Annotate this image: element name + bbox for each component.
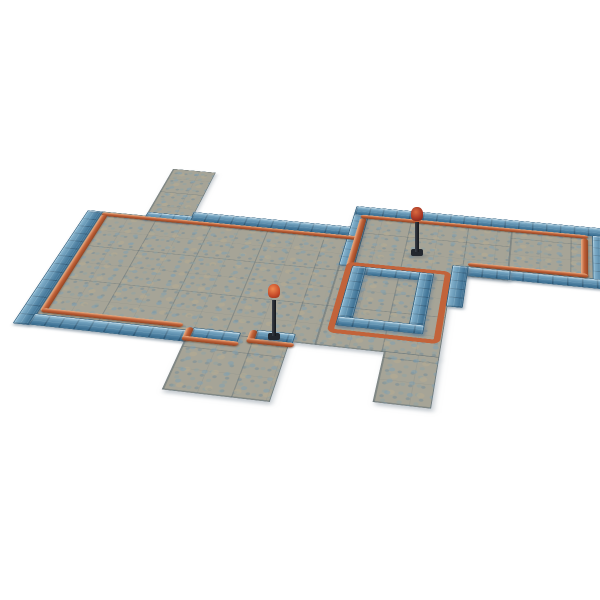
lamp-pole <box>415 222 419 252</box>
pipe-arm-end <box>581 238 588 277</box>
lamp-flame <box>411 207 423 221</box>
product-photo <box>0 0 600 600</box>
torch-lamp-post-right <box>409 207 425 258</box>
pipe-room-ring <box>326 262 451 345</box>
floor-bottom-right <box>373 351 440 409</box>
lamp-pole <box>272 300 276 336</box>
isometric-tile-layout <box>0 160 600 449</box>
wall-right-arm-end <box>592 235 600 281</box>
torch-lamp-post-center <box>266 284 282 342</box>
lamp-flame <box>268 284 280 298</box>
